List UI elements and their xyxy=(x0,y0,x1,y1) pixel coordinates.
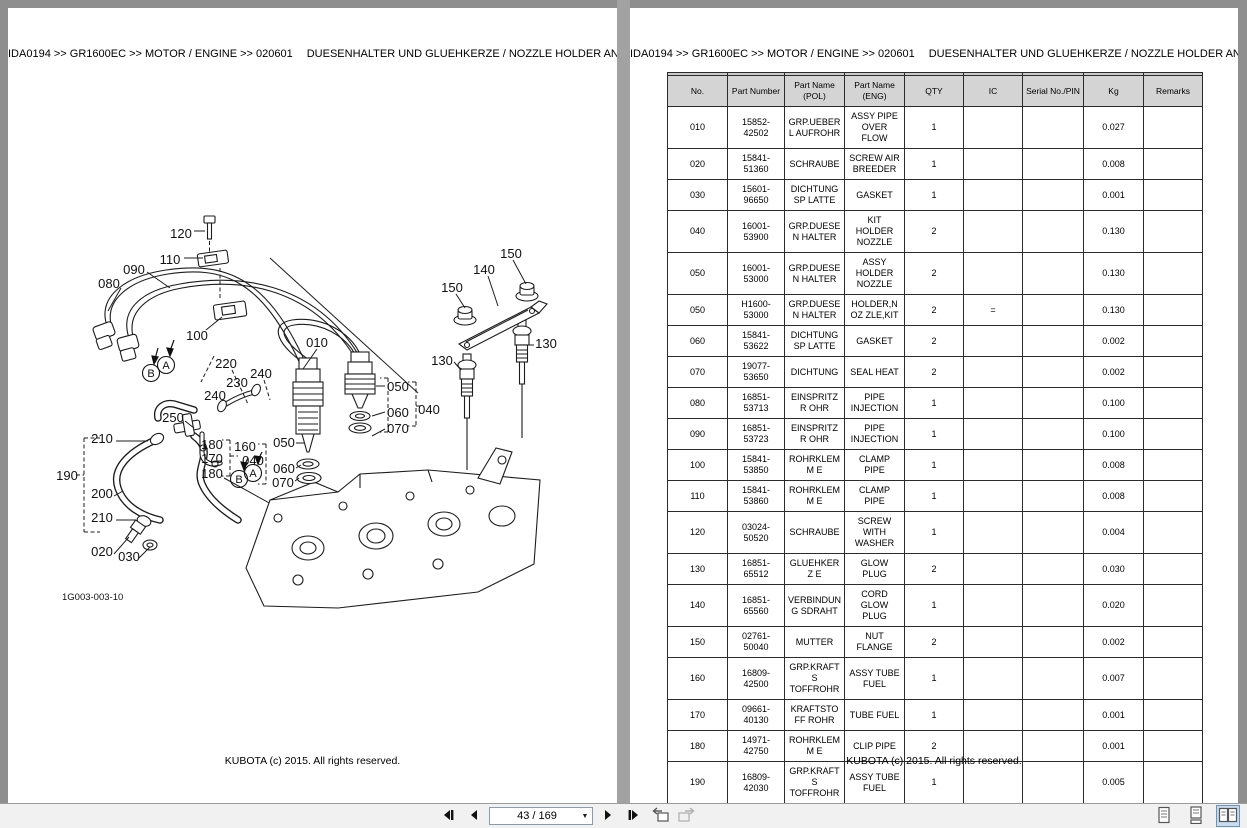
table-cell: GRP.UEBERL AUFROHR xyxy=(785,107,845,149)
table-cell: 0.001 xyxy=(1084,700,1144,731)
document-page-right: IDA0194 >> GR1600EC >> MOTOR / ENGINE >>… xyxy=(630,8,1238,803)
table-row: 02015841-51360SCHRAUBESCREW AIR BREEDER1… xyxy=(668,149,1203,180)
table-cell: 1 xyxy=(905,149,964,180)
table-cell: 1 xyxy=(905,388,964,419)
table-cell: ASSY HOLDER NOZZLE xyxy=(845,253,905,295)
table-cell: PIPE INJECTION xyxy=(845,419,905,450)
diagram-part-label: 240 xyxy=(250,366,272,381)
table-cell: GASKET xyxy=(845,180,905,211)
table-cell xyxy=(1144,512,1203,554)
table-cell: 0.002 xyxy=(1084,326,1144,357)
table-cell: 110 xyxy=(668,481,728,512)
table-cell: 030 xyxy=(668,180,728,211)
diagram-part-label: 080 xyxy=(98,276,120,291)
table-row: 14016851-65560VERBINDUNG SDRAHTCORD GLOW… xyxy=(668,585,1203,627)
table-cell: 170 xyxy=(668,700,728,731)
table-cell: 16851-53713 xyxy=(728,388,785,419)
page-gap-divider xyxy=(617,0,630,803)
table-cell xyxy=(964,253,1023,295)
table-cell: 070 xyxy=(668,357,728,388)
table-cell xyxy=(964,357,1023,388)
table-cell: 050 xyxy=(668,295,728,326)
document-page-left: IDA0194 >> GR1600EC >> MOTOR / ENGINE >>… xyxy=(8,8,617,803)
table-header-cell: Part Name (POL) xyxy=(785,76,845,107)
table-cell xyxy=(964,658,1023,700)
table-row: 01015852-42502GRP.UEBERL AUFROHRASSY PIP… xyxy=(668,107,1203,149)
single-page-view-icon xyxy=(1155,806,1173,827)
table-row: 07019077-53650DICHTUNGSEAL HEAT20.002 xyxy=(668,357,1203,388)
table-cell: GRP.DUESEN HALTER xyxy=(785,253,845,295)
table-row: 09016851-53723EINSPRITZR OHRPIPE INJECTI… xyxy=(668,419,1203,450)
table-row: 17009661-40130KRAFTSTOFF ROHRTUBE FUEL10… xyxy=(668,700,1203,731)
table-cell: 1 xyxy=(905,419,964,450)
table-cell: 1 xyxy=(905,658,964,700)
table-cell: 2 xyxy=(905,295,964,326)
table-cell: 1 xyxy=(905,180,964,211)
table-cell: 140 xyxy=(668,585,728,627)
table-cell xyxy=(964,762,1023,804)
parts-diagram: 1201100900801000101501401501301302202402… xyxy=(8,8,617,803)
table-cell: 09661-40130 xyxy=(728,700,785,731)
table-row: 08016851-53713EINSPRITZR OHRPIPE INJECTI… xyxy=(668,388,1203,419)
table-cell: CORD GLOW PLUG xyxy=(845,585,905,627)
copyright-footer: KUBOTA (c) 2015. All rights reserved. xyxy=(630,755,1238,767)
two-page-view-icon xyxy=(1218,806,1238,827)
table-cell: 130 xyxy=(668,554,728,585)
table-header-cell: No. xyxy=(668,76,728,107)
table-cell: VERBINDUNG SDRAHT xyxy=(785,585,845,627)
diagram-ref-letter: A xyxy=(249,468,257,480)
chevron-down-icon: ▼ xyxy=(578,813,592,820)
table-cell: 16809-42030 xyxy=(728,762,785,804)
table-cell: 1 xyxy=(905,585,964,627)
table-cell: 2 xyxy=(905,211,964,253)
diagram-part-label: 210 xyxy=(91,431,113,446)
table-cell: CLAMP PIPE xyxy=(845,481,905,512)
table-cell xyxy=(964,585,1023,627)
table-cell: EINSPRITZR OHR xyxy=(785,419,845,450)
table-cell xyxy=(964,700,1023,731)
table-cell xyxy=(1144,253,1203,295)
table-cell: = xyxy=(964,295,1023,326)
table-cell: DICHTUNGSP LATTE xyxy=(785,326,845,357)
diagram-part-label: 140 xyxy=(473,262,495,277)
table-cell xyxy=(1023,554,1084,585)
table-cell: SEAL HEAT xyxy=(845,357,905,388)
diagram-ref-letter: A xyxy=(162,360,170,372)
table-cell: GASKET xyxy=(845,326,905,357)
table-cell xyxy=(1023,388,1084,419)
table-cell xyxy=(964,481,1023,512)
table-cell: GRP.DUESEN HALTER xyxy=(785,211,845,253)
table-cell xyxy=(1144,295,1203,326)
previous-page-icon xyxy=(467,808,481,825)
first-page-button[interactable] xyxy=(437,806,459,827)
table-cell xyxy=(964,107,1023,149)
table-cell: 150 xyxy=(668,627,728,658)
table-cell xyxy=(1023,357,1084,388)
table-header-cell: Remarks xyxy=(1144,76,1203,107)
table-cell: 03024-50520 xyxy=(728,512,785,554)
table-cell: 090 xyxy=(668,419,728,450)
table-cell xyxy=(1144,326,1203,357)
table-cell xyxy=(964,627,1023,658)
continuous-view-icon xyxy=(1187,806,1205,827)
table-cell: KIT HOLDER NOZZLE xyxy=(845,211,905,253)
table-cell: 2 xyxy=(905,627,964,658)
previous-page-button[interactable] xyxy=(463,806,485,827)
table-cell: ROHRKLEMM E xyxy=(785,450,845,481)
diagram-part-label: 040 xyxy=(418,402,440,417)
table-row: 06015841-53622DICHTUNGSP LATTEGASKET20.0… xyxy=(668,326,1203,357)
table-cell: ASSY PIPE OVER FLOW xyxy=(845,107,905,149)
diagram-ref-letter: B xyxy=(147,368,154,380)
diagram-part-label: 160 xyxy=(234,439,256,454)
table-row: 04016001-53900GRP.DUESEN HALTERKIT HOLDE… xyxy=(668,211,1203,253)
parts-table-head: No.Part NumberPart Name (POL)Part Name (… xyxy=(668,73,1203,107)
table-row: 05016001-53000GRP.DUESEN HALTERASSY HOLD… xyxy=(668,253,1203,295)
diagram-part-label: 070 xyxy=(387,421,409,436)
table-cell: 190 xyxy=(668,762,728,804)
table-cell xyxy=(1144,211,1203,253)
table-cell: DICHTUNGSP LATTE xyxy=(785,180,845,211)
diagram-part-label: 090 xyxy=(123,262,145,277)
table-cell xyxy=(1023,107,1084,149)
diagram-part-label: 180 xyxy=(201,466,223,481)
table-cell xyxy=(1144,762,1203,804)
table-cell: EINSPRITZR OHR xyxy=(785,388,845,419)
previous-view-icon xyxy=(652,807,669,825)
table-cell xyxy=(1023,295,1084,326)
table-cell: 2 xyxy=(905,357,964,388)
diagram-part-label: 200 xyxy=(91,486,113,501)
table-cell: ASSY TUBE FUEL xyxy=(845,658,905,700)
diagram-part-label: 110 xyxy=(160,252,181,267)
diagram-part-label: 050 xyxy=(387,379,409,394)
table-cell xyxy=(964,450,1023,481)
table-row: 11015841-53860ROHRKLEMM ECLAMP PIPE10.00… xyxy=(668,481,1203,512)
table-cell: 16809-42500 xyxy=(728,658,785,700)
table-cell: GRP.KRAFTS TOFFROHR xyxy=(785,762,845,804)
table-cell: 0.005 xyxy=(1084,762,1144,804)
figure-id: 1G003-003-10 xyxy=(62,592,123,603)
table-cell xyxy=(1023,585,1084,627)
next-view-icon xyxy=(678,807,695,825)
table-cell: GLUEHKERZ E xyxy=(785,554,845,585)
table-row: 15002761-50040MUTTERNUT FLANGE20.002 xyxy=(668,627,1203,658)
table-cell xyxy=(1144,627,1203,658)
table-cell: CLAMP PIPE xyxy=(845,450,905,481)
table-cell xyxy=(964,149,1023,180)
continuous-view-button[interactable] xyxy=(1184,805,1208,827)
table-cell xyxy=(1144,700,1203,731)
table-cell xyxy=(1144,585,1203,627)
diagram-part-label: 130 xyxy=(431,353,453,368)
diagram-part-label: 210 xyxy=(91,510,113,525)
next-page-icon xyxy=(601,808,615,825)
table-cell: 1 xyxy=(905,762,964,804)
table-cell: 15841-53850 xyxy=(728,450,785,481)
table-cell xyxy=(1144,180,1203,211)
diagram-part-label: 240 xyxy=(204,388,226,403)
table-cell: 15852-42502 xyxy=(728,107,785,149)
table-cell: 02761-50040 xyxy=(728,627,785,658)
table-cell xyxy=(1144,481,1203,512)
table-cell xyxy=(1144,388,1203,419)
table-cell: 0.030 xyxy=(1084,554,1144,585)
table-cell: H1600-53000 xyxy=(728,295,785,326)
table-cell: GRP.KRAFTS TOFFROHR xyxy=(785,658,845,700)
table-cell xyxy=(1144,149,1203,180)
table-cell: 0.020 xyxy=(1084,585,1144,627)
table-cell: 1 xyxy=(905,107,964,149)
table-cell: 1 xyxy=(905,700,964,731)
table-cell xyxy=(1023,762,1084,804)
table-cell: 160 xyxy=(668,658,728,700)
next-page-button[interactable] xyxy=(597,806,619,827)
diagram-part-label: 020 xyxy=(91,544,113,559)
table-cell: HOLDER,NOZ ZLE,KIT xyxy=(845,295,905,326)
table-cell xyxy=(1023,211,1084,253)
table-header-cell: Part Name (ENG) xyxy=(845,76,905,107)
table-cell xyxy=(1023,627,1084,658)
table-cell: TUBE FUEL xyxy=(845,700,905,731)
table-cell: 0.130 xyxy=(1084,253,1144,295)
table-cell xyxy=(1023,481,1084,512)
table-header-cell: Serial No./PIN xyxy=(1023,76,1084,107)
table-cell xyxy=(1023,512,1084,554)
table-row: 12003024-50520SCHRAUBESCREW WITH WASHER1… xyxy=(668,512,1203,554)
table-cell xyxy=(1023,149,1084,180)
last-page-button[interactable] xyxy=(623,806,645,827)
table-cell xyxy=(1144,450,1203,481)
table-cell: 0.130 xyxy=(1084,211,1144,253)
table-cell: 080 xyxy=(668,388,728,419)
table-cell: 15841-53622 xyxy=(728,326,785,357)
table-cell: SCHRAUBE xyxy=(785,149,845,180)
table-cell xyxy=(1144,357,1203,388)
table-cell xyxy=(964,326,1023,357)
table-cell: 1 xyxy=(905,512,964,554)
table-cell xyxy=(1023,700,1084,731)
table-header-cell: QTY xyxy=(905,76,964,107)
diagram-part-label: 120 xyxy=(170,226,192,241)
diagram-part-label: 060 xyxy=(273,461,295,476)
table-cell: 0.008 xyxy=(1084,450,1144,481)
table-cell: DICHTUNG xyxy=(785,357,845,388)
table-cell: GLOW PLUG xyxy=(845,554,905,585)
table-cell: 0.002 xyxy=(1084,627,1144,658)
page-navigation-group: 43 / 169 ▼ xyxy=(437,804,697,828)
table-cell: 1 xyxy=(905,481,964,512)
table-cell: 15841-53860 xyxy=(728,481,785,512)
breadcrumb: IDA0194 >> GR1600EC >> MOTOR / ENGINE >>… xyxy=(630,48,915,60)
table-cell xyxy=(1023,326,1084,357)
table-cell: KRAFTSTOFF ROHR xyxy=(785,700,845,731)
table-row: 10015841-53850ROHRKLEMM ECLAMP PIPE10.00… xyxy=(668,450,1203,481)
table-cell: SCHRAUBE xyxy=(785,512,845,554)
table-cell: 010 xyxy=(668,107,728,149)
table-cell: MUTTER xyxy=(785,627,845,658)
table-cell xyxy=(1023,180,1084,211)
table-cell xyxy=(964,211,1023,253)
diagram-part-label: 150 xyxy=(500,246,522,261)
table-cell xyxy=(1023,253,1084,295)
table-cell: 0.002 xyxy=(1084,357,1144,388)
table-cell: SCREW WITH WASHER xyxy=(845,512,905,554)
table-row: 03015601-96650DICHTUNGSP LATTEGASKET10.0… xyxy=(668,180,1203,211)
table-cell: PIPE INJECTION xyxy=(845,388,905,419)
table-cell: 0.008 xyxy=(1084,149,1144,180)
page-header: IDA0194 >> GR1600EC >> MOTOR / ENGINE >>… xyxy=(630,48,1238,60)
table-cell xyxy=(1144,419,1203,450)
parts-table-body: 01015852-42502GRP.UEBERL AUFROHRASSY PIP… xyxy=(668,107,1203,804)
table-cell: 16851-65512 xyxy=(728,554,785,585)
diagram-part-label: 150 xyxy=(441,280,463,295)
table-cell: 16851-53723 xyxy=(728,419,785,450)
table-cell: 16001-53000 xyxy=(728,253,785,295)
first-page-icon xyxy=(441,808,455,825)
table-cell: 2 xyxy=(905,554,964,585)
table-row: 050H1600-53000GRP.DUESEN HALTERHOLDER,NO… xyxy=(668,295,1203,326)
table-cell xyxy=(964,419,1023,450)
table-row: 13016851-65512GLUEHKERZ EGLOW PLUG20.030 xyxy=(668,554,1203,585)
diagram-part-label: 250 xyxy=(162,410,184,425)
page-indicator: 43 / 169 xyxy=(490,810,578,822)
table-cell: 050 xyxy=(668,253,728,295)
table-cell: 1 xyxy=(905,450,964,481)
table-cell: 15601-96650 xyxy=(728,180,785,211)
diagram-part-label: 170 xyxy=(201,451,223,466)
table-cell xyxy=(1023,419,1084,450)
diagram-part-label: 190 xyxy=(56,468,78,483)
table-cell xyxy=(964,554,1023,585)
last-page-icon xyxy=(627,808,641,825)
table-cell: 0.130 xyxy=(1084,295,1144,326)
diagram-ref-letter: B xyxy=(235,474,242,486)
table-cell: 16851-65560 xyxy=(728,585,785,627)
diagram-part-label: 130 xyxy=(535,336,557,351)
table-cell xyxy=(1023,450,1084,481)
table-cell xyxy=(964,388,1023,419)
diagram-part-label: 070 xyxy=(272,475,294,490)
copyright-footer: KUBOTA (c) 2015. All rights reserved. xyxy=(8,755,617,767)
diagram-part-label: 100 xyxy=(186,328,208,343)
table-cell xyxy=(1144,107,1203,149)
table-cell: 15841-51360 xyxy=(728,149,785,180)
previous-view-button[interactable] xyxy=(649,806,671,827)
table-cell xyxy=(964,180,1023,211)
table-cell: NUT FLANGE xyxy=(845,627,905,658)
table-header-cell: Part Number xyxy=(728,76,785,107)
table-cell xyxy=(1023,658,1084,700)
single-page-view-button[interactable] xyxy=(1152,805,1176,827)
diagram-part-label: 180 xyxy=(201,437,223,452)
table-cell: 0.008 xyxy=(1084,481,1144,512)
page-title: DUESENHALTER UND GLUEHKERZE / NOZZLE HOL… xyxy=(929,48,1238,60)
page-layout-group xyxy=(1152,804,1240,828)
table-cell xyxy=(1144,658,1203,700)
next-view-button[interactable] xyxy=(675,806,697,827)
table-cell: 040 xyxy=(668,211,728,253)
table-cell: ASSY TUBE FUEL xyxy=(845,762,905,804)
table-cell: 16001-53900 xyxy=(728,211,785,253)
table-cell: 0.007 xyxy=(1084,658,1144,700)
table-header-cell: Kg xyxy=(1084,76,1144,107)
table-cell: 060 xyxy=(668,326,728,357)
table-row: 16016809-42500GRP.KRAFTS TOFFROHRASSY TU… xyxy=(668,658,1203,700)
table-header-row: No.Part NumberPart Name (POL)Part Name (… xyxy=(668,76,1203,107)
table-cell: GRP.DUESEN HALTER xyxy=(785,295,845,326)
table-cell: 0.004 xyxy=(1084,512,1144,554)
parts-table: No.Part NumberPart Name (POL)Part Name (… xyxy=(667,72,1203,804)
diagram-part-label: 230 xyxy=(226,375,248,390)
table-cell xyxy=(1144,554,1203,585)
diagram-part-label: 060 xyxy=(387,405,409,420)
table-header-cell: IC xyxy=(964,76,1023,107)
two-page-view-button[interactable] xyxy=(1216,805,1240,827)
table-cell: 100 xyxy=(668,450,728,481)
table-cell: 120 xyxy=(668,512,728,554)
diagram-part-label: 030 xyxy=(118,549,140,564)
table-cell xyxy=(964,512,1023,554)
table-cell: 2 xyxy=(905,326,964,357)
table-cell: 19077-53650 xyxy=(728,357,785,388)
table-cell: 0.027 xyxy=(1084,107,1144,149)
page-number-combobox[interactable]: 43 / 169 ▼ xyxy=(489,807,593,825)
diagram-part-label: 050 xyxy=(273,435,295,450)
diagram-part-label: 040 xyxy=(242,453,264,468)
table-cell: 0.001 xyxy=(1084,180,1144,211)
table-row: 19016809-42030GRP.KRAFTS TOFFROHRASSY TU… xyxy=(668,762,1203,804)
table-cell: 020 xyxy=(668,149,728,180)
table-cell: ROHRKLEMM E xyxy=(785,481,845,512)
diagram-part-label: 010 xyxy=(306,335,328,350)
table-cell: 0.100 xyxy=(1084,419,1144,450)
table-cell: 2 xyxy=(905,253,964,295)
diagram-part-label: 220 xyxy=(215,356,237,371)
table-cell: SCREW AIR BREEDER xyxy=(845,149,905,180)
table-cell: 0.100 xyxy=(1084,388,1144,419)
pdf-viewer-window: { "header": { "breadcrumb": "IDA0194 >> … xyxy=(0,0,1247,828)
viewer-toolbar: 43 / 169 ▼ xyxy=(0,803,1247,828)
